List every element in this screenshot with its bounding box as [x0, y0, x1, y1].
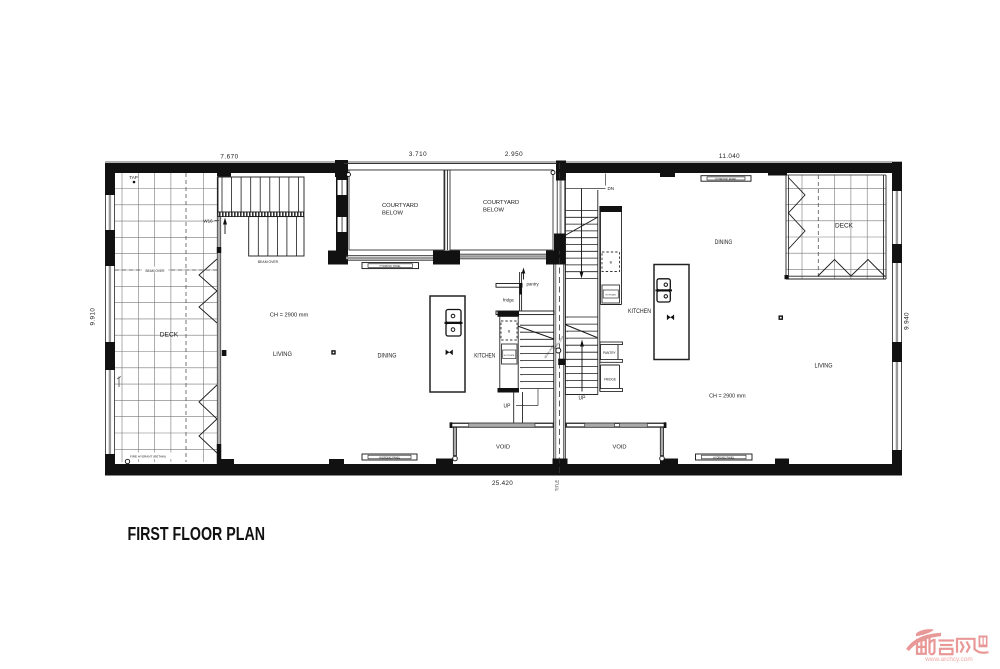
- svg-text:www.archcy.com: www.archcy.com: [924, 656, 972, 663]
- svg-text:CH = 2900 mm: CH = 2900 mm: [270, 313, 309, 319]
- svg-text:BEAM OVER: BEAM OVER: [146, 269, 166, 273]
- svg-text:DECK: DECK: [160, 331, 179, 338]
- svg-text:BELOW: BELOW: [483, 207, 504, 213]
- svg-text:DECK: DECK: [835, 222, 854, 229]
- svg-text:CH = 2900 mm: CH = 2900 mm: [709, 394, 746, 400]
- svg-text:fridge: fridge: [503, 298, 515, 303]
- svg-text:BELOW: BELOW: [382, 211, 403, 217]
- svg-text:VOID: VOID: [496, 445, 510, 451]
- svg-text:BEAM OVER: BEAM OVER: [258, 260, 279, 264]
- svg-text:DINING: DINING: [378, 353, 397, 360]
- svg-text:HOTPLATE: HOTPLATE: [504, 354, 515, 357]
- svg-text:FIRE HYDRANT (RETAIN): FIRE HYDRANT (RETAIN): [130, 455, 166, 459]
- svg-text:COURTYARD: COURTYARD: [382, 203, 418, 209]
- svg-text:11.040: 11.040: [719, 153, 740, 160]
- svg-text:25.420: 25.420: [492, 480, 513, 487]
- svg-text:COURTYARD: COURTYARD: [483, 200, 519, 206]
- svg-text:HYDRONIC PANEL: HYDRONIC PANEL: [380, 265, 402, 268]
- svg-text:KITCHEN: KITCHEN: [474, 353, 495, 360]
- svg-text:LIVING: LIVING: [273, 351, 292, 358]
- svg-text:FRIDGE: FRIDGE: [604, 378, 616, 382]
- svg-text:UP: UP: [579, 396, 587, 402]
- svg-text:TITLE: TITLE: [555, 480, 560, 492]
- svg-text:LIVING: LIVING: [815, 363, 833, 370]
- svg-text:DN: DN: [608, 186, 615, 191]
- svg-text:UP: UP: [504, 404, 512, 410]
- svg-text:9.940: 9.940: [904, 312, 911, 330]
- svg-text:9.910: 9.910: [90, 308, 97, 326]
- svg-text:3.710: 3.710: [409, 151, 427, 158]
- svg-text:pantry: pantry: [527, 282, 540, 287]
- svg-text:TAP: TAP: [129, 175, 137, 180]
- svg-text:FIRST FLOOR PLAN: FIRST FLOOR PLAN: [128, 523, 266, 544]
- svg-text:VOID: VOID: [613, 445, 627, 451]
- svg-text:2.950: 2.950: [505, 151, 523, 158]
- svg-text:PANTRY: PANTRY: [603, 351, 617, 355]
- svg-text:DINING: DINING: [715, 239, 733, 246]
- svg-text:HYDRONIC PANEL: HYDRONIC PANEL: [713, 456, 735, 459]
- svg-text:HYDRONIC PANEL: HYDRONIC PANEL: [379, 456, 401, 459]
- svg-text:KITCHEN: KITCHEN: [628, 308, 651, 315]
- svg-text:HYDRONIC PANEL: HYDRONIC PANEL: [715, 178, 737, 181]
- svg-text:7.670: 7.670: [220, 154, 238, 161]
- svg-text:W16: W16: [203, 218, 213, 223]
- svg-text:HOTPLATE: HOTPLATE: [606, 294, 617, 297]
